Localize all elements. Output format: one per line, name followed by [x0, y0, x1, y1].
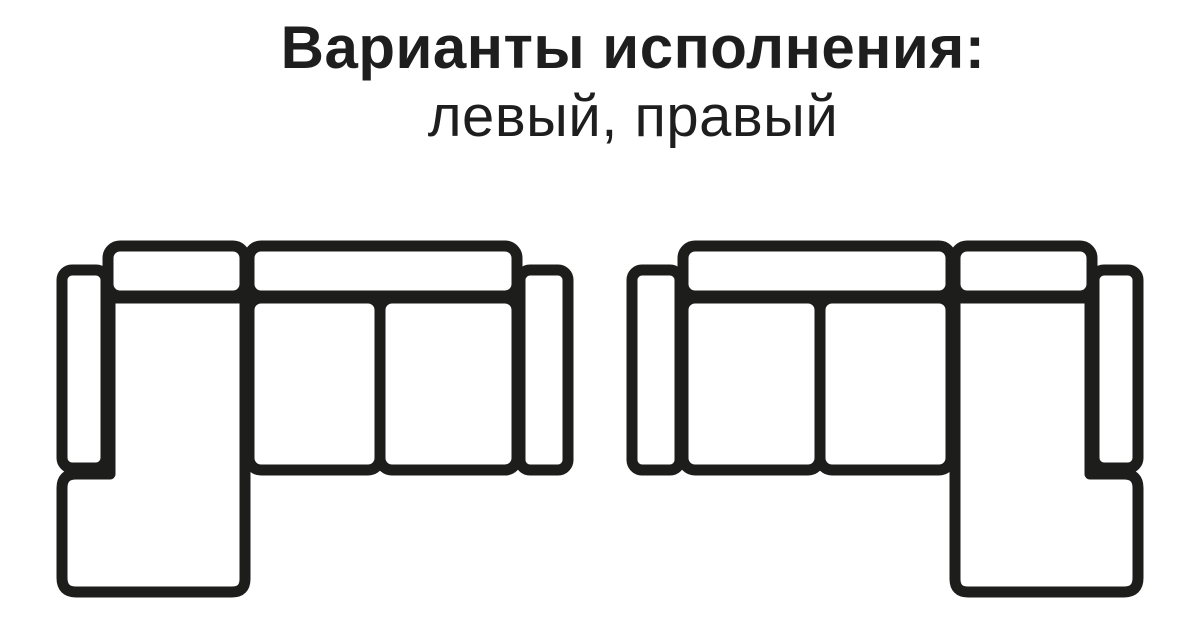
- sofa-right-variant: [632, 246, 1138, 592]
- sofa-left-variant: [62, 246, 568, 592]
- sofa-variants-diagram: [0, 0, 1200, 644]
- page: Варианты исполнения: левый, правый: [0, 0, 1200, 644]
